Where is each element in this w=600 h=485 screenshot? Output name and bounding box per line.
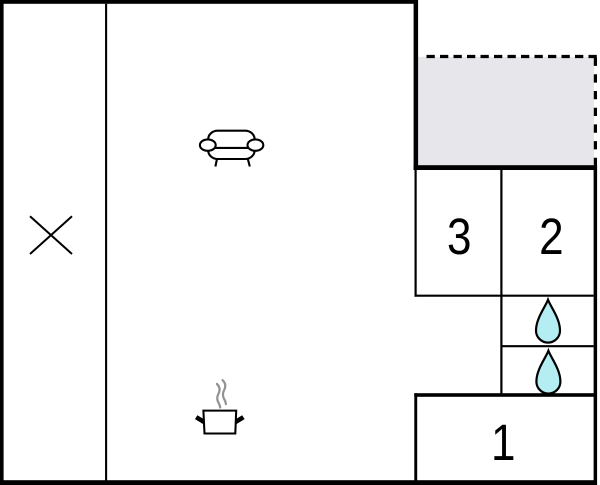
svg-text:1: 1: [491, 415, 515, 472]
svg-text:3: 3: [447, 209, 471, 266]
svg-text:2: 2: [539, 209, 563, 266]
